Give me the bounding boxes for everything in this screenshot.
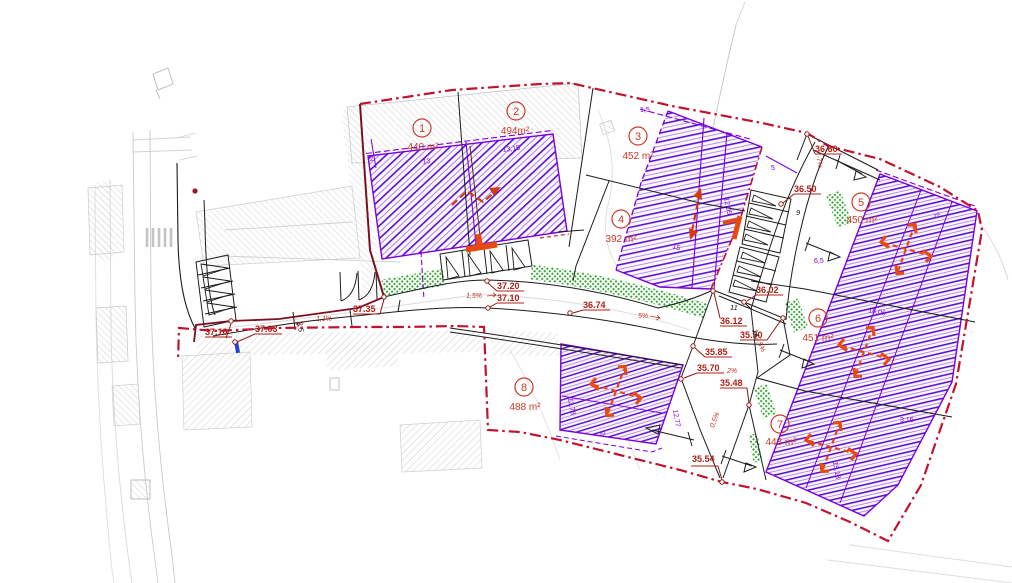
svg-text:11: 11 bbox=[730, 303, 738, 312]
svg-text:451 m²: 451 m² bbox=[802, 333, 834, 344]
svg-text:1,1%: 1,1% bbox=[316, 316, 332, 323]
svg-text:36.12: 36.12 bbox=[720, 316, 743, 326]
svg-text:36.74: 36.74 bbox=[583, 300, 606, 310]
svg-text:8: 8 bbox=[521, 382, 527, 394]
svg-text:1,5%: 1,5% bbox=[466, 293, 482, 300]
svg-text:36.02: 36.02 bbox=[756, 285, 779, 295]
svg-text:1,5: 1,5 bbox=[640, 107, 650, 114]
svg-text:488 m²: 488 m² bbox=[509, 402, 541, 413]
svg-text:1: 1 bbox=[419, 123, 425, 135]
svg-text:35.85: 35.85 bbox=[705, 347, 728, 357]
svg-text:37.03: 37.03 bbox=[255, 324, 278, 334]
svg-text:5: 5 bbox=[771, 165, 775, 172]
svg-text:6: 6 bbox=[815, 313, 821, 325]
svg-text:13: 13 bbox=[422, 158, 431, 166]
svg-text:7: 7 bbox=[777, 419, 783, 431]
svg-text:37.10: 37.10 bbox=[205, 327, 228, 337]
svg-text:443 m²: 443 m² bbox=[765, 437, 797, 448]
svg-text:37.20: 37.20 bbox=[497, 281, 520, 291]
svg-text:37.10: 37.10 bbox=[497, 293, 520, 303]
svg-text:36.50: 36.50 bbox=[794, 184, 817, 194]
svg-text:37.35: 37.35 bbox=[353, 304, 376, 314]
svg-text:6,5: 6,5 bbox=[814, 258, 824, 265]
svg-text:2: 2 bbox=[513, 106, 519, 118]
svg-text:5: 5 bbox=[858, 197, 864, 209]
svg-text:35.48: 35.48 bbox=[720, 378, 743, 388]
svg-text:35.70: 35.70 bbox=[697, 363, 720, 373]
svg-text:450 m²: 450 m² bbox=[846, 215, 878, 226]
svg-text:440 m²: 440 m² bbox=[407, 142, 439, 153]
svg-text:392 m²: 392 m² bbox=[605, 234, 637, 245]
svg-text:452 m²: 452 m² bbox=[622, 151, 654, 162]
svg-text:5%: 5% bbox=[638, 313, 648, 320]
svg-text:2%: 2% bbox=[726, 368, 737, 375]
svg-text:4: 4 bbox=[618, 214, 624, 226]
svg-text:35.54: 35.54 bbox=[692, 454, 715, 464]
svg-text:36.60: 36.60 bbox=[815, 144, 838, 154]
svg-text:3,16: 3,16 bbox=[900, 417, 914, 424]
svg-text:3: 3 bbox=[635, 131, 641, 143]
svg-text:494m²: 494m² bbox=[501, 126, 530, 137]
